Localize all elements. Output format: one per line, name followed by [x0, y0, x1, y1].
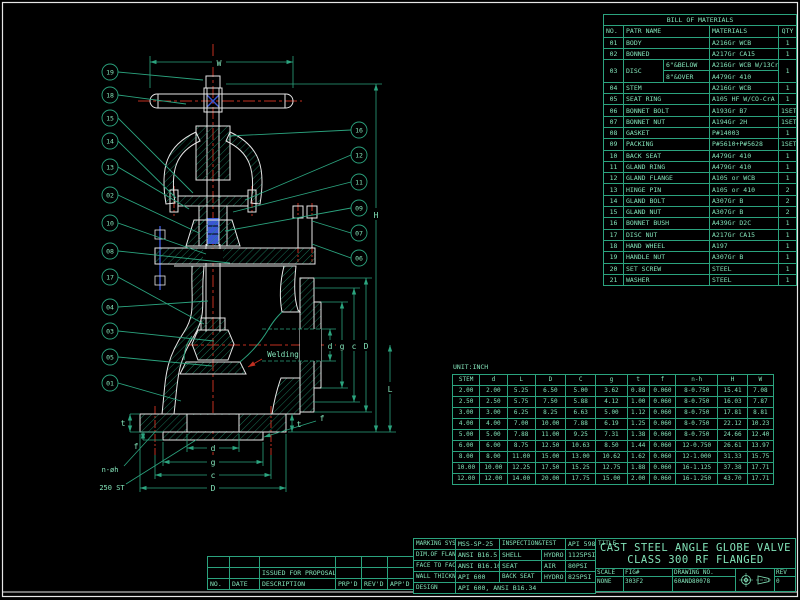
rev-header-date: DATE — [230, 579, 260, 590]
bom-row: 18 HAND WHEEL A197 1 — [604, 240, 797, 251]
revision-description: ISSUED FOR PROPOSAL — [260, 568, 336, 579]
balloon-label: 10 — [106, 220, 114, 228]
bom-qty: 1SET — [779, 116, 797, 127]
scale-value: NONE — [596, 577, 623, 586]
bom-no: 07 — [604, 116, 624, 127]
gland-flange — [178, 196, 248, 206]
rev-header-revd: REV'D — [362, 579, 388, 590]
balloon-label: 14 — [106, 138, 114, 146]
bom-no: 10 — [604, 150, 624, 161]
dim-row: 3.003.00 6.258.25 6.635.00 1.120.060 8-0… — [453, 408, 774, 419]
bom-part-name: BODY — [624, 37, 710, 48]
bom-material: A194Gr 2H — [710, 116, 779, 127]
bom-no: 06 — [604, 105, 624, 116]
bom-part-name: DISC NUT — [624, 229, 710, 240]
bom-part-name: BONNET BOLT — [624, 105, 710, 116]
dim-header: H — [718, 375, 747, 386]
bom-qty: 1 — [779, 229, 797, 240]
bom-material: A307Gr B — [710, 207, 779, 218]
valve-structure — [140, 76, 321, 440]
balloon-label: 18 — [106, 92, 114, 100]
dim-label-f-left: f — [134, 442, 139, 451]
bom-qty: 1 — [779, 218, 797, 229]
spec-shell-value: 1125PSI — [566, 550, 596, 561]
bom-qty: 1 — [779, 127, 797, 138]
bom-no: 04 — [604, 82, 624, 93]
dim-header: C — [566, 375, 596, 386]
balloon-label: 12 — [355, 152, 363, 160]
bom-qty: 1SET — [779, 105, 797, 116]
drawing-no-label: DRAWING NO. — [673, 569, 735, 577]
bom-part-name: STEM — [624, 82, 710, 93]
bom-qty: 1 — [779, 48, 797, 59]
bom-row: 12 GLAND FLANGE A105 or WCB 1 — [604, 173, 797, 184]
bom-part-name: GLAND RING — [624, 161, 710, 172]
dim-label-w: W — [217, 59, 222, 68]
dim-label-dd-bottom: D — [211, 484, 216, 493]
bonnet-flange — [155, 248, 315, 264]
bom-no: 02 — [604, 48, 624, 59]
welding-label: Welding — [267, 350, 299, 359]
dim-header: W — [747, 375, 773, 386]
drawing-title-line1: CAST STEEL ANGLE GLOBE VALVE — [596, 539, 795, 554]
bom-row: 02 BONNED A217Gr CA15 1 — [604, 48, 797, 59]
bom-no: 21 — [604, 274, 624, 285]
dim-row: 8.008.00 11.0015.00 13.0010.62 1.620.060… — [453, 452, 774, 463]
bom-row: 08 GASKET P#14003 1 — [604, 127, 797, 138]
bom-no: 15 — [604, 207, 624, 218]
balloon-label: 08 — [106, 248, 114, 256]
balloon-label: 03 — [106, 328, 114, 336]
disc — [192, 330, 234, 360]
bom-part-name: GLAND FLANGE — [624, 173, 710, 184]
bom-no: 11 — [604, 161, 624, 172]
dim-header-row: STEMdLDCgtfn-hHW — [453, 375, 774, 386]
bom-material: A479Gr 410 — [710, 71, 779, 82]
spec-seat-label: SEAT — [500, 561, 542, 572]
bom-qty: 1SET — [779, 139, 797, 150]
bom-material: A479Gr 410 — [710, 161, 779, 172]
yoke — [196, 126, 230, 180]
note-250st: 250 ST — [99, 484, 125, 492]
bom-material: A105 or WCB — [710, 173, 779, 184]
bom-qty: 1 — [779, 150, 797, 161]
bom-qty: 2 — [779, 184, 797, 195]
bom-row: 01 BODY A216Gr WCB 1 — [604, 37, 797, 48]
dim-header: L — [507, 375, 535, 386]
bom-material: A479Gr 410 — [710, 150, 779, 161]
bom-row: 06 BONNET BOLT A193Gr B7 1SET — [604, 105, 797, 116]
bom-header-no: NO. — [604, 26, 624, 37]
dim-label-c-bottom: c — [211, 471, 216, 480]
drawing-title-line2: CLASS 300 RF FLANGED — [596, 554, 795, 566]
bom-row: 14 GLAND BOLT A307Gr B 2 — [604, 195, 797, 206]
bom-no: 03 — [604, 60, 624, 83]
bom-header-material: MATERIALS — [710, 26, 779, 37]
bom-material: A105 or 410 — [710, 184, 779, 195]
dim-row: 5.005.00 7.8811.00 9.257.31 1.380.060 8-… — [453, 430, 774, 441]
bom-row: 09 PACKING P#5610+P#5628 1SET — [604, 139, 797, 150]
bom-part-name: GLAND BOLT — [624, 195, 710, 206]
drawing-no-cell: DRAWING NO. 60AND80078 — [673, 569, 736, 591]
rev-cell: REV 0 — [775, 569, 795, 591]
dim-label-d-right: d — [328, 342, 333, 351]
balloon-label: 07 — [355, 230, 363, 238]
revision-header-row: NO. DATE DESCRIPTION PRP'D REV'D APP'D — [208, 579, 414, 590]
spec-inspection-label: INSPECTION&TEST — [500, 539, 566, 550]
bom-sub-name: 6"&BELOW — [664, 60, 710, 71]
bom-part-name: SEAT RING — [624, 94, 710, 105]
spec-shell-label: SHELL — [500, 550, 542, 561]
spec-table: MARKING SYSTEM MSS-SP-25 INSPECTION&TEST… — [413, 538, 596, 594]
bom-qty: 1 — [779, 94, 797, 105]
bom-row: 19 HANDLE NUT A307Gr B 1 — [604, 252, 797, 263]
bom-part-name: BACK SEAT — [624, 150, 710, 161]
rev-header-prpd: PRP'D — [336, 579, 362, 590]
bom-row: 05 SEAT RING A105 HF W/CO-CrA 1 — [604, 94, 797, 105]
balloon-label: 11 — [355, 179, 363, 187]
rev-header-description: DESCRIPTION — [260, 579, 336, 590]
bom-material: A217Gr CA15 — [710, 48, 779, 59]
dim-row: 6.006.00 8.7512.50 10.638.50 1.440.060 1… — [453, 441, 774, 452]
dim-row: 2.502.50 5.757.50 5.884.12 1.000.060 8-0… — [453, 397, 774, 408]
revision-row-empty — [208, 557, 414, 568]
dim-header: t — [627, 375, 649, 386]
dim-label-t-left: t — [121, 419, 126, 428]
bom-no: 18 — [604, 240, 624, 251]
bom-part-name: HANDLE NUT — [624, 252, 710, 263]
spec-seat-value: 80PSI — [566, 561, 596, 572]
bom-no: 17 — [604, 229, 624, 240]
bom-header-qty: QTY — [779, 26, 797, 37]
balloon-label: 16 — [355, 127, 363, 135]
bom-row: 16 BONNET BUSH A439Gr D2C 1 — [604, 218, 797, 229]
balloon-label: 04 — [106, 304, 114, 312]
bom-row: 04 STEM A216Gr WCB 1 — [604, 82, 797, 93]
bom-no: 05 — [604, 94, 624, 105]
projection-cell — [736, 569, 775, 591]
spec-marking-label: MARKING SYSTEM — [414, 539, 456, 550]
spec-backseat-label: BACK SEAT — [500, 572, 542, 583]
bom-qty: 1 — [779, 274, 797, 285]
bom-qty: 1 — [779, 263, 797, 274]
bom-material: A307Gr B — [710, 252, 779, 263]
dim-label-f-right: f — [320, 414, 325, 423]
drawing-sheet: W H L d g c D t f t f d g c D n-øh 250 S… — [0, 0, 800, 600]
fig-value: 303F2 — [624, 577, 672, 586]
bill-of-materials-table: BILL OF MATERIALS NO. PATR NAME MATERIAL… — [603, 14, 797, 286]
bom-no: 09 — [604, 139, 624, 150]
spec-wall-label: WALL THICKNESS — [414, 572, 456, 583]
dim-label-l: L — [388, 385, 393, 394]
bom-qty: 1 — [779, 240, 797, 251]
bom-title: BILL OF MATERIALS — [604, 15, 797, 26]
bom-part-name: GLAND NUT — [624, 207, 710, 218]
bom-material: A217Gr CA15 — [710, 229, 779, 240]
spec-backseat-value: 825PSI — [566, 572, 596, 583]
dim-header: d — [480, 375, 507, 386]
bom-no: 20 — [604, 263, 624, 274]
spec-dimflange-value: ANSI B16.5 — [456, 550, 500, 561]
dim-header: g — [596, 375, 627, 386]
rev-label: REV — [775, 569, 795, 577]
dimension-table: STEMdLDCgtfn-hHW 2.002.00 5.256.50 5.003… — [452, 374, 774, 485]
bom-row: 11 GLAND RING A479Gr 410 1 — [604, 161, 797, 172]
disc-nut — [201, 318, 225, 330]
unit-label: UNIT:INCH — [453, 363, 488, 371]
balloon-label: 09 — [355, 205, 363, 213]
third-angle-projection-icon — [738, 572, 772, 588]
bom-material: P#14003 — [710, 127, 779, 138]
bom-sub-name: 8"&OVER — [664, 71, 710, 82]
bom-row: 21 WASHER STEEL 1 — [604, 274, 797, 285]
bom-row: 17 DISC NUT A217Gr CA15 1 — [604, 229, 797, 240]
bom-qty: 2 — [779, 207, 797, 218]
title-label: TITLE — [598, 540, 616, 547]
bom-material: A216Gr WCB — [710, 82, 779, 93]
bom-material: A197 — [710, 240, 779, 251]
spec-shell-medium: HYDRO — [542, 550, 566, 561]
bom-material: A216Gr WCB — [710, 37, 779, 48]
bom-material: A193Gr B7 — [710, 105, 779, 116]
dim-row: 4.004.00 7.0010.00 7.886.19 1.250.060 8-… — [453, 419, 774, 430]
revision-row-proposal: ISSUED FOR PROPOSAL — [208, 568, 414, 579]
dim-row: 12.0012.00 14.0020.00 17.7515.00 2.000.0… — [453, 474, 774, 485]
balloon-label: 02 — [106, 192, 114, 200]
drawing-no-value: 60AND80078 — [673, 577, 735, 586]
dim-header: n-h — [676, 375, 718, 386]
bom-part-name: PACKING — [624, 139, 710, 150]
bom-part-name: BONNET BUSH — [624, 218, 710, 229]
fig-label: FIG# — [624, 569, 672, 577]
bom-material: STEEL — [710, 263, 779, 274]
dim-label-d-bottom: d — [211, 444, 216, 453]
rev-header-no: NO. — [208, 579, 230, 590]
bom-qty: 1 — [779, 252, 797, 263]
balloon-label: 17 — [106, 274, 114, 282]
bom-part-name: SET SCREW — [624, 263, 710, 274]
bom-no: 19 — [604, 252, 624, 263]
bom-header-name: PATR NAME — [624, 26, 710, 37]
scale-cell: SCALE NONE — [596, 569, 624, 591]
spec-seat-medium: AIR — [542, 561, 566, 572]
bom-row: 15 GLAND NUT A307Gr B 2 — [604, 207, 797, 218]
dim-label-h: H — [374, 211, 379, 220]
dim-row: 2.002.00 5.256.50 5.003.62 0.880.060 8-0… — [453, 386, 774, 397]
dim-label-c-right: c — [352, 342, 357, 351]
bom-no: 08 — [604, 127, 624, 138]
bom-qty: 1 — [779, 60, 797, 83]
bom-material: A216Gr WCB W/13Cr — [710, 60, 779, 71]
bom-material: STEEL — [710, 274, 779, 285]
bom-part-name: HAND WHEEL — [624, 240, 710, 251]
title-box: TITLE CAST STEEL ANGLE GLOBE VALVE CLASS… — [595, 538, 796, 592]
spec-f2f-value: ANSI B16.10 — [456, 561, 500, 572]
note-bolt-holes: n-øh — [102, 466, 119, 474]
balloon-label: 05 — [106, 354, 114, 362]
rev-header-appd: APP'D — [388, 579, 414, 590]
bom-row: 13 HINGE PIN A105 or 410 2 — [604, 184, 797, 195]
bom-no: 16 — [604, 218, 624, 229]
bom-material: P#5610+P#5628 — [710, 139, 779, 150]
balloon-label: 13 — [106, 164, 114, 172]
bom-row: 10 BACK SEAT A479Gr 410 1 — [604, 150, 797, 161]
balloon-label: 19 — [106, 69, 114, 77]
bom-row: 20 SET SCREW STEEL 1 — [604, 263, 797, 274]
welding-note: Welding — [248, 350, 299, 367]
spec-wall-value: API 600 — [456, 572, 500, 583]
bom-part-name: WASHER — [624, 274, 710, 285]
bom-row: 07 BONNET NUT A194Gr 2H 1SET — [604, 116, 797, 127]
revision-table: ISSUED FOR PROPOSAL NO. DATE DESCRIPTION… — [207, 556, 414, 590]
balloon-label: 01 — [106, 380, 114, 388]
dim-header: f — [649, 375, 675, 386]
dim-header: D — [535, 375, 565, 386]
bom-qty: 1 — [779, 37, 797, 48]
dim-label-g-right: g — [340, 342, 345, 351]
bom-qty: 1 — [779, 173, 797, 184]
spec-design-value: API 600, ANSI B16.34 — [456, 583, 596, 594]
dim-label-dd-right: D — [364, 342, 369, 351]
fig-cell: FIG# 303F2 — [624, 569, 673, 591]
bom-part-name: HINGE PIN — [624, 184, 710, 195]
bom-qty: 2 — [779, 195, 797, 206]
bom-material: A439Gr D2C — [710, 218, 779, 229]
bom-part-name: DISC — [624, 60, 664, 83]
dim-header: STEM — [453, 375, 480, 386]
bom-qty: 1 — [779, 82, 797, 93]
rev-value: 0 — [775, 577, 795, 586]
balloon-label: 06 — [355, 255, 363, 263]
bom-no: 12 — [604, 173, 624, 184]
bom-material: A307Gr B — [710, 195, 779, 206]
bom-material: A105 HF W/CO-CrA — [710, 94, 779, 105]
spec-design-label: DESIGN — [414, 583, 456, 594]
spec-marking-value: MSS-SP-25 — [456, 539, 500, 550]
spec-dimflange-label: DIM.OF FLANGE — [414, 550, 456, 561]
bom-part-name: GASKET — [624, 127, 710, 138]
bom-no: 01 — [604, 37, 624, 48]
bom-no: 14 — [604, 195, 624, 206]
balloon-label: 15 — [106, 115, 114, 123]
bom-part-name: BONNED — [624, 48, 710, 59]
spec-f2f-label: FACE TO FACE — [414, 561, 456, 572]
scale-label: SCALE — [596, 569, 623, 577]
bom-row-disc: 03 DISC 6"&BELOW A216Gr WCB W/13Cr 1 — [604, 60, 797, 71]
bom-qty: 1 — [779, 161, 797, 172]
bom-no: 13 — [604, 184, 624, 195]
bonnet — [186, 220, 240, 246]
dim-label-t-right: t — [297, 420, 302, 429]
spec-backseat-medium: HYDRO — [542, 572, 566, 583]
dim-label-g-bottom: g — [211, 458, 216, 467]
spec-inspection-value: API 598 — [566, 539, 596, 550]
bom-part-name: BONNET NUT — [624, 116, 710, 127]
dim-row: 10.0010.00 12.2517.50 15.2512.75 1.880.0… — [453, 463, 774, 474]
